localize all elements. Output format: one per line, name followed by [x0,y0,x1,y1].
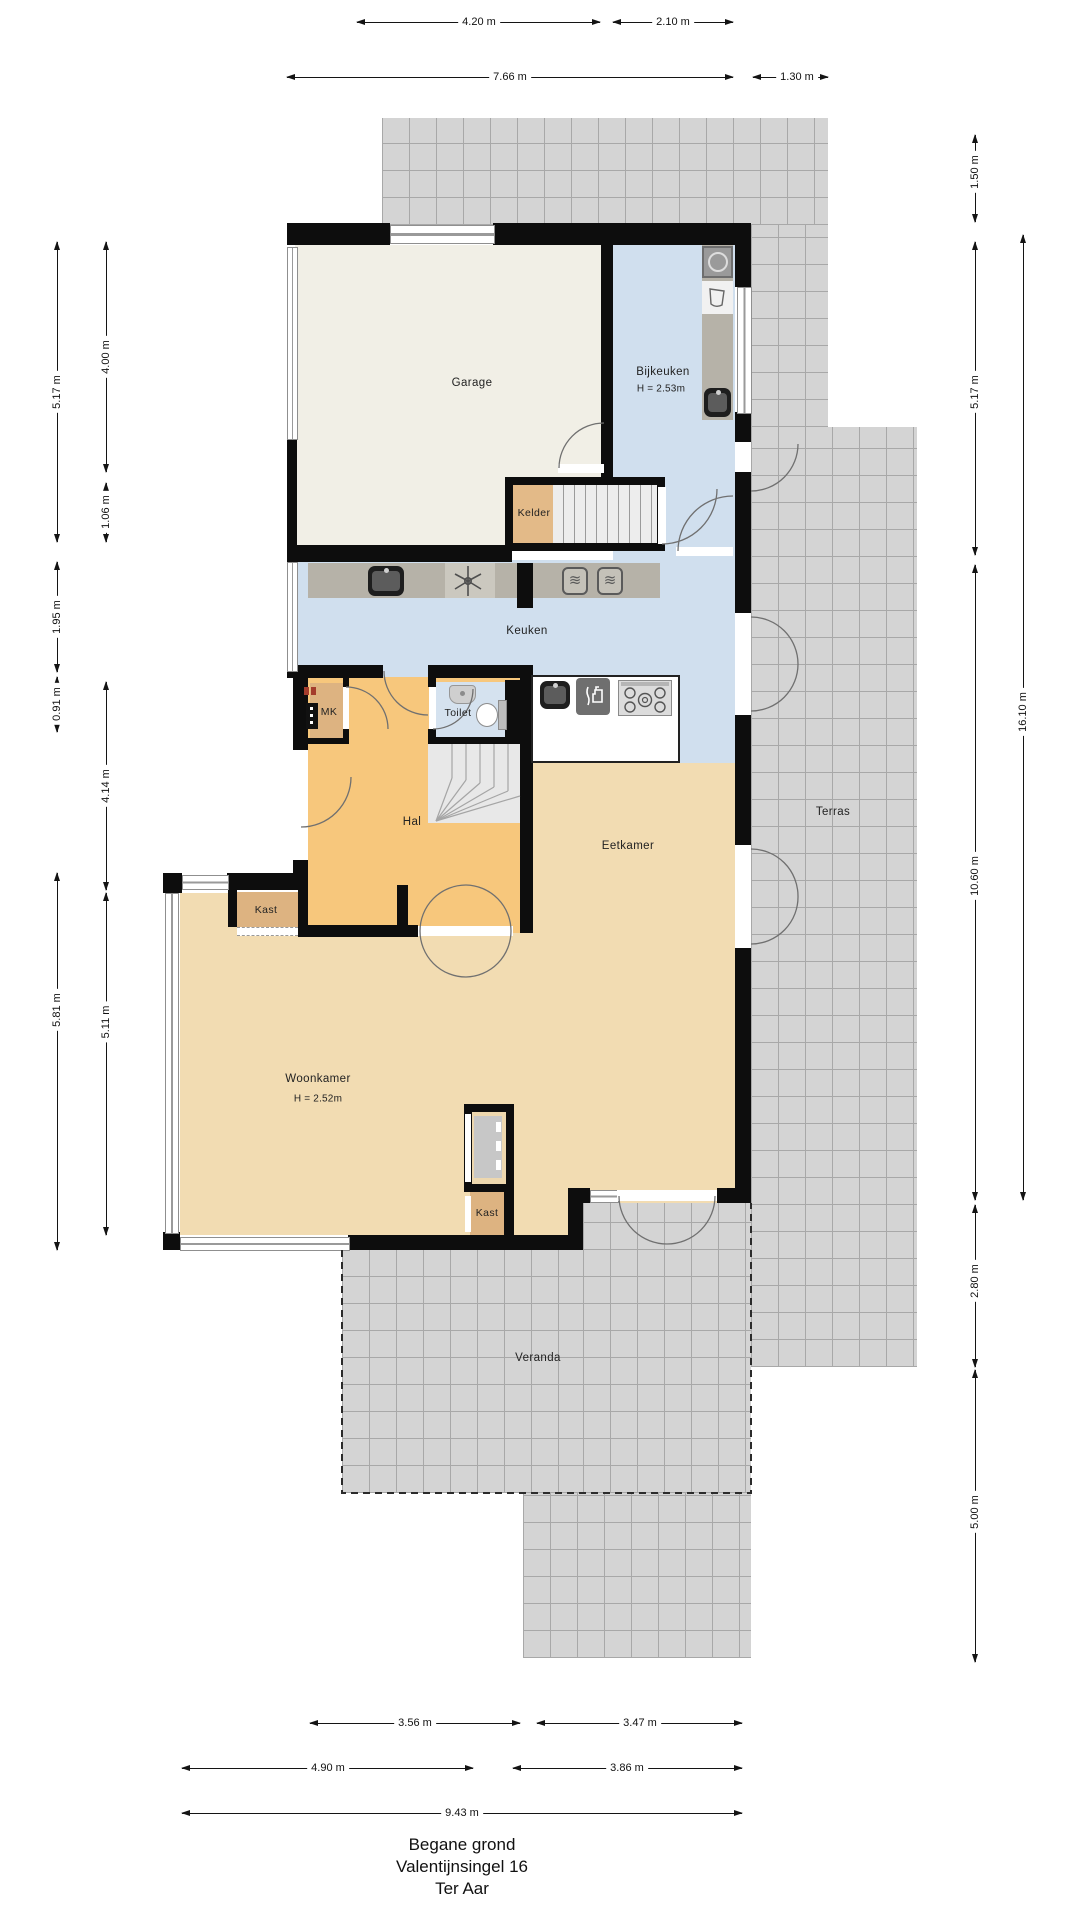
room-label-garage: Garage [452,377,493,389]
dimension-label: 3.86 m [606,1762,648,1774]
dimension-label: 5.11 m [100,1002,112,1043]
dimension-line [106,893,107,1235]
room-label-veranda: Veranda [515,1352,561,1364]
dimension-label: 10.60 m [969,852,981,900]
dimension-label: 0.91 m [51,683,63,725]
room-label-terras: Terras [816,806,850,818]
room-label-mk: MK [321,706,338,718]
room-height-woonkamer: H = 2.52m [294,1094,342,1105]
dimension-label: 3.56 m [394,1717,436,1729]
dimension-label: 5.17 m [969,371,981,413]
dimension-label: 1.95 m [51,596,63,638]
dimension-label: 4.00 m [100,336,112,378]
room-label-keuken: Keuken [506,625,547,637]
dimension-label: 4.90 m [307,1762,349,1774]
room-label-toilet: Toilet [445,707,472,719]
plan-title-address: Valentijnsingel 16 [396,1856,528,1878]
dimension-label: 9.43 m [441,1807,483,1819]
dimension-label: 7.66 m [489,71,531,83]
plan-title-floor: Begane grond [396,1834,528,1856]
dimension-label: 16.10 m [1017,688,1029,736]
room-label-kelder: Kelder [518,507,551,519]
dimension-label: 2.10 m [652,16,694,28]
dimension-line [57,873,58,1250]
dimension-label: 1.30 m [776,71,818,83]
plan-title-city: Ter Aar [396,1878,528,1900]
dimension-label: 2.80 m [969,1260,981,1302]
dimension-label: 5.17 m [51,371,63,413]
room-label-hal: Hal [403,816,421,828]
dimension-label: 4.20 m [458,16,500,28]
room-label-bijkeuken: Bijkeuken [636,366,689,378]
extractor-fan-icon [455,566,481,596]
room-label-eetkamer: Eetkamer [602,840,654,852]
room-label-woonkamer: Woonkamer [285,1073,350,1085]
dimension-label: 5.00 m [969,1491,981,1533]
room-label-kast-hal: Kast [255,904,278,916]
dimension-label: 1.06 m [100,491,112,533]
dimension-label: 4.14 m [100,765,112,807]
room-height-bijkeuken: H = 2.53m [637,384,685,395]
dimension-label: 3.47 m [619,1717,661,1729]
dimension-label: 5.81 m [51,989,63,1031]
plan-linework [0,0,1080,1920]
plan-title: Begane grond Valentijnsingel 16 Ter Aar [396,1834,528,1900]
dimension-label: 1.50 m [969,151,981,193]
room-label-kast-woonkamer: Kast [476,1207,499,1219]
floorplan-canvas: ≋ ≋ [0,0,1080,1920]
